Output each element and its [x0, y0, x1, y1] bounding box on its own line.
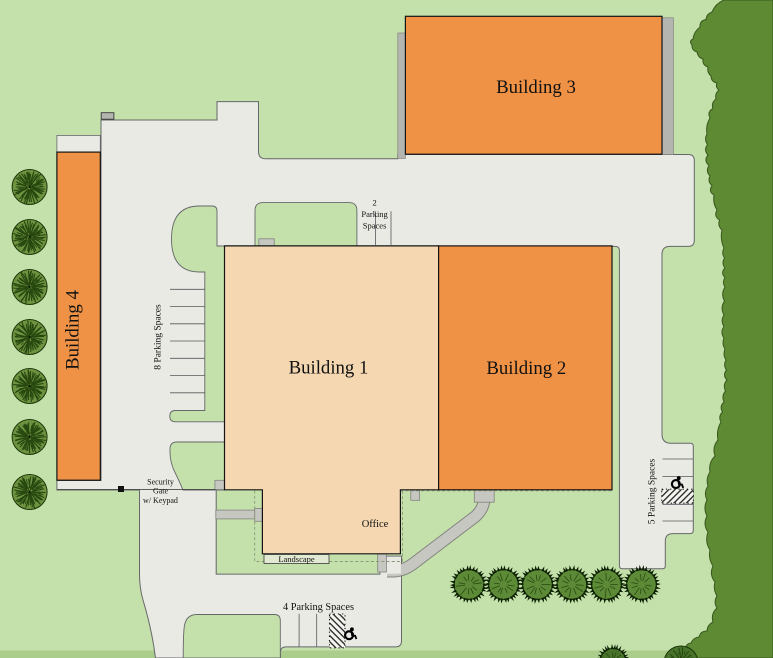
svg-text:Landscape: Landscape — [278, 554, 315, 564]
svg-text:Security: Security — [147, 477, 174, 486]
svg-text:Parking: Parking — [361, 209, 388, 219]
svg-text:2: 2 — [372, 198, 376, 208]
svg-text:8 Parking Spaces: 8 Parking Spaces — [154, 304, 164, 370]
svg-text:Office: Office — [362, 519, 389, 530]
svg-text:4 Parking Spaces: 4 Parking Spaces — [283, 602, 354, 613]
svg-text:Building 3: Building 3 — [496, 77, 576, 98]
svg-text:Spaces: Spaces — [363, 221, 387, 231]
svg-text:Gate: Gate — [153, 487, 169, 496]
svg-text:5 Parking Spaces: 5 Parking Spaces — [648, 458, 658, 524]
svg-text:Building 1: Building 1 — [289, 358, 369, 379]
svg-text:w/ Keypad: w/ Keypad — [143, 496, 178, 505]
svg-text:Building 2: Building 2 — [486, 358, 566, 379]
svg-text:Building 4: Building 4 — [62, 289, 83, 369]
